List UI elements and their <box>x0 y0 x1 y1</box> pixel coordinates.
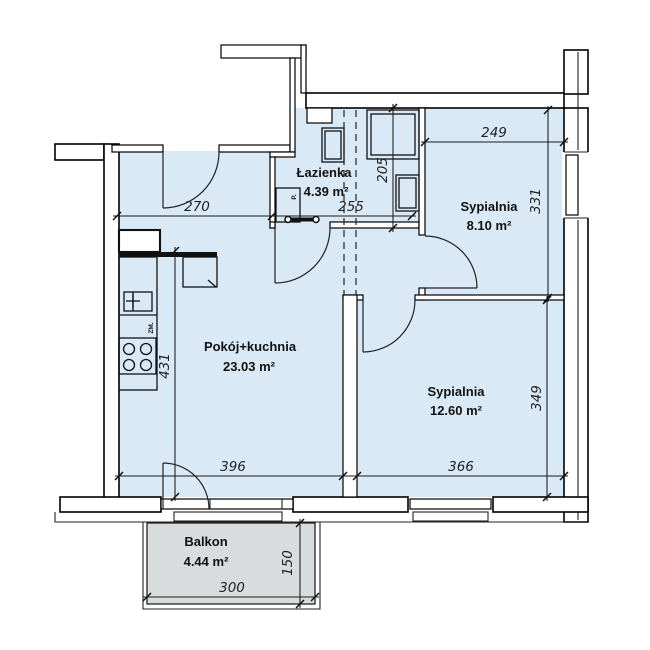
duct-shaft <box>307 108 332 123</box>
room-area-label-sypialnia-2: 12.60 m² <box>430 403 483 418</box>
wall-hall-south-right <box>415 295 564 300</box>
room-label-balkon: Balkon <box>184 534 227 549</box>
wall-bathroom-bedroom1-upper <box>419 108 425 235</box>
wall-bathroom-bottom <box>330 222 419 228</box>
wall-bathroom-left-upper <box>290 58 295 152</box>
dim-label-255: 255 <box>338 199 364 215</box>
room-label-sypialnia-2: Sypialnia <box>427 384 485 399</box>
facade-outline <box>55 512 588 522</box>
wall-entry-right <box>219 145 290 152</box>
dim-label-270: 270 <box>184 199 210 215</box>
dim-label-205: 205 <box>375 157 391 183</box>
wall-top <box>306 93 564 108</box>
room-area-label-balkon: 4.44 m² <box>184 554 229 569</box>
kitchen-cabinet <box>119 230 160 252</box>
floor-plan-drawing: ZM. P. <box>0 0 650 650</box>
dim-label-349: 349 <box>529 385 545 411</box>
floor-plan: ZM. P. <box>0 0 650 650</box>
room-area-lazienka-annex <box>275 152 295 228</box>
dim-label-396: 396 <box>220 459 246 475</box>
wall-stub-top-left <box>55 144 104 160</box>
window-bedroom2-sash <box>410 499 491 509</box>
balcony-door-window-sash <box>161 499 293 509</box>
kitchen-counter-edge <box>119 252 217 257</box>
wall-bathroom-bottom-left <box>270 222 275 228</box>
balcony-window-sill <box>174 512 282 521</box>
dim-label-431: 431 <box>157 353 173 379</box>
room-label-sypialnia-1: Sypialnia <box>460 199 518 214</box>
window-bedroom2-sill <box>413 512 488 521</box>
room-label-pokoj-kuchnia: Pokój+kuchnia <box>204 339 297 354</box>
wall-bottom-middle <box>293 497 408 512</box>
wall-bottom-left <box>60 497 161 512</box>
wall-entry-left <box>112 145 163 152</box>
radiator-end-right <box>313 217 319 223</box>
dim-label-150: 150 <box>280 550 296 576</box>
wall-room-divider <box>343 295 357 497</box>
wall-corridor-right <box>301 45 306 93</box>
wall-right-extension <box>564 50 588 94</box>
wall-corridor-top <box>221 45 306 58</box>
room-area-label-pokoj-kuchnia: 23.03 m² <box>223 359 276 374</box>
dishwasher-label: ZM. <box>148 322 155 333</box>
room-label-lazienka: Łazienka <box>297 165 353 180</box>
wall-left <box>104 144 119 498</box>
radiator-end-left <box>285 217 291 223</box>
dim-label-249: 249 <box>481 125 507 141</box>
room-area-label-sypialnia-1: 8.10 m² <box>467 218 512 233</box>
dim-label-331: 331 <box>528 188 544 214</box>
wall-bathroom-jog <box>270 152 295 157</box>
dim-label-300: 300 <box>219 580 245 596</box>
wall-bottom-right <box>493 497 588 512</box>
window-right-sash <box>566 155 578 215</box>
room-area-label-lazienka: 4.39 m² <box>304 184 349 199</box>
washer-label: P. <box>291 194 298 199</box>
dim-label-366: 366 <box>448 459 474 475</box>
